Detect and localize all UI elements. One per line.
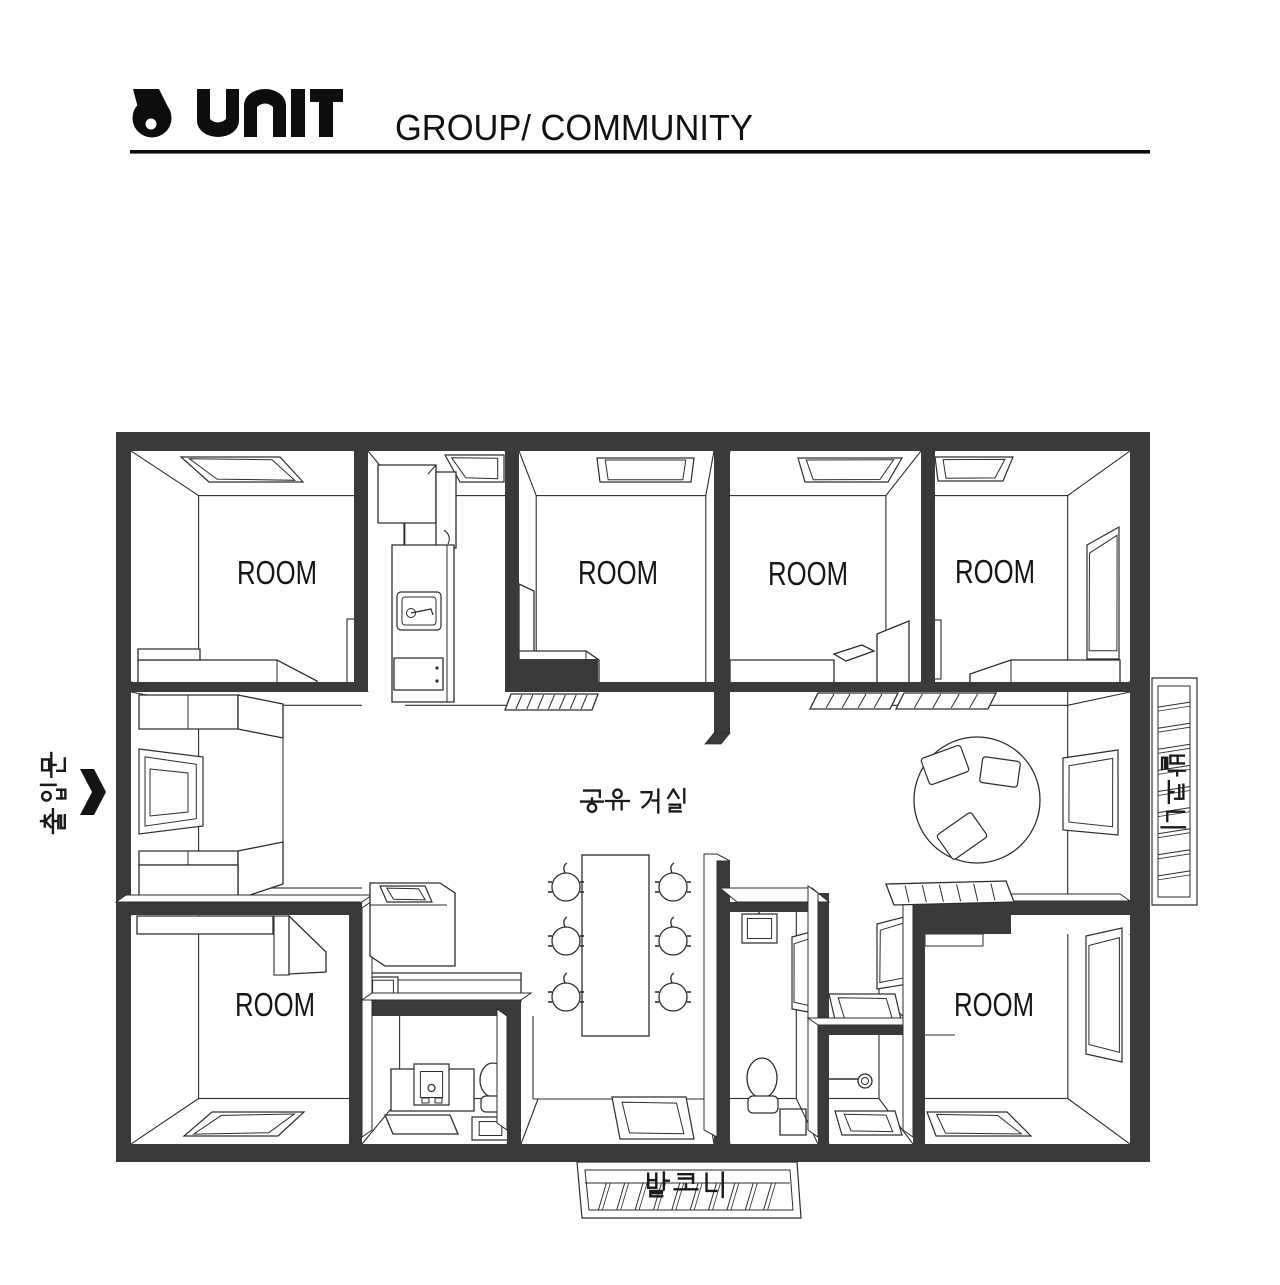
- svg-text:ROOM: ROOM: [237, 554, 317, 591]
- svg-text:ROOM: ROOM: [954, 986, 1034, 1023]
- svg-text:GROUP/ COMMUNITY: GROUP/ COMMUNITY: [395, 107, 753, 148]
- svg-text:ROOM: ROOM: [235, 986, 315, 1023]
- svg-text:ROOM: ROOM: [768, 555, 848, 592]
- svg-text:ROOM: ROOM: [955, 553, 1035, 590]
- svg-text:ROOM: ROOM: [578, 554, 658, 591]
